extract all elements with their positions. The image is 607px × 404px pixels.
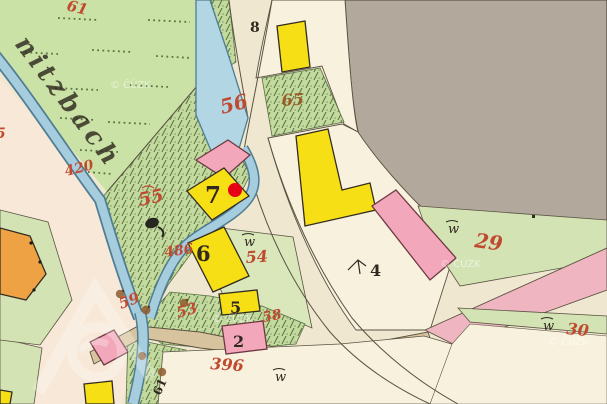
building-dot [29,241,32,244]
parcel-label-396: 396 [210,354,245,375]
copyright-watermark: © ČÚZK [440,257,481,270]
building-dot [38,260,41,263]
meadow-symbol-w: w [275,370,286,385]
copyright-watermark: © ČÚZK [212,312,253,325]
building-yellow-bottom-left [84,381,114,404]
meadow-symbol-w: w [543,319,554,334]
meadow-symbol-w: w [244,235,255,250]
cadastral-map-viewport[interactable]: nitzbach 56 65 55 420 486 54 53 59 58 29… [0,0,607,404]
house-label-6: 6 [196,241,211,266]
building-yellow-top [277,21,310,72]
parcel-label-4: 4 [370,261,381,280]
parcel-label-8: 8 [250,20,260,36]
location-marker [228,183,242,197]
building-yellow-corner [0,390,12,404]
parcel-label-edge-5: 5 [0,126,6,142]
cadastral-map: nitzbach 56 65 55 420 486 54 53 59 58 29… [0,0,607,404]
parcel-label-65: 65 [281,89,305,110]
house-label-7: 7 [205,182,221,209]
parcel-label-58: 58 [261,307,283,326]
house-label-2: 2 [233,332,244,351]
meadow-symbol-w: w [448,222,459,237]
copyright-watermark: © ČÚZK [110,78,151,91]
boundary-stone-mark [532,215,535,218]
building-2 [222,321,267,354]
parcel-label-29: 29 [472,228,504,256]
copyright-watermark: © ČÚZK [548,335,589,348]
building-dot [32,288,35,291]
